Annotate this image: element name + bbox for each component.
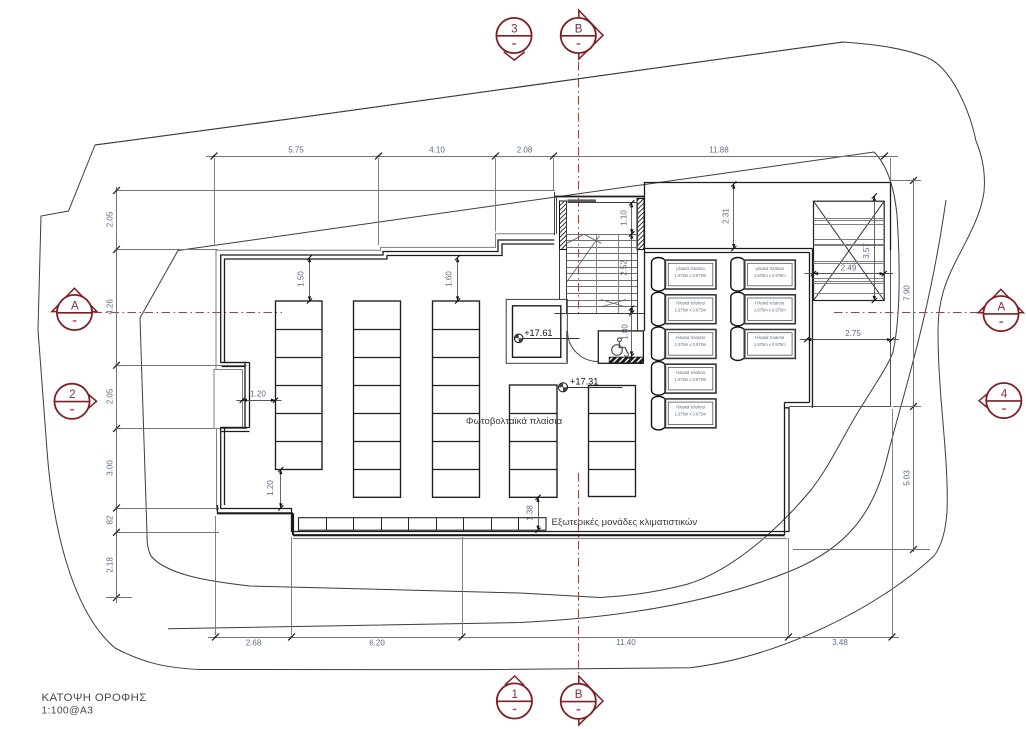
svg-text:Ηλιακά πλαίσια: Ηλιακά πλαίσια [676, 370, 706, 375]
svg-text:2.05: 2.05 [105, 388, 114, 404]
svg-text:Φωτοβολταϊκά πλαίσια: Φωτοβολταϊκά πλαίσια [466, 416, 563, 427]
svg-text:3.00: 3.00 [105, 460, 114, 476]
svg-text:2.52: 2.52 [619, 260, 628, 276]
svg-text:1.975m x 0.975m: 1.975m x 0.975m [754, 342, 786, 347]
svg-text:1.975m x 0.975m: 1.975m x 0.975m [754, 273, 786, 278]
svg-text:4.26: 4.26 [105, 299, 114, 315]
svg-text:1.975m x 0.975m: 1.975m x 0.975m [675, 308, 707, 313]
svg-text:2.18: 2.18 [105, 557, 114, 573]
svg-text:1:100@A3: 1:100@A3 [42, 705, 94, 716]
svg-text:+17.31: +17.31 [570, 376, 598, 386]
svg-text:2.05: 2.05 [105, 211, 114, 227]
svg-text:3.48: 3.48 [832, 638, 848, 647]
svg-text:4: 4 [1001, 388, 1008, 400]
svg-text:1.20: 1.20 [266, 480, 275, 496]
svg-text:Ηλιακά πλαίσια: Ηλιακά πλαίσια [755, 335, 785, 340]
svg-text:2.49: 2.49 [841, 264, 857, 273]
svg-text:2.75: 2.75 [845, 329, 861, 338]
svg-text:μλιακά πλαίσια: μλιακά πλαίσια [676, 266, 705, 271]
svg-text:5.03: 5.03 [902, 470, 911, 486]
svg-text:11.88: 11.88 [709, 146, 729, 155]
svg-text:1.38: 1.38 [526, 505, 535, 521]
svg-text:1.975m x 0.975m: 1.975m x 0.975m [754, 308, 786, 313]
svg-text:Εξωτερικές μονάδες κλιματιστικ: Εξωτερικές μονάδες κλιματιστικών [552, 517, 698, 528]
svg-text:ΚΑΤΟΨΗ ΟΡΟΦΗΣ: ΚΑΤΟΨΗ ΟΡΟΦΗΣ [42, 692, 147, 704]
svg-text:1.975m x 0.975m: 1.975m x 0.975m [675, 377, 707, 382]
svg-text:1: 1 [511, 689, 517, 701]
svg-text:6.20: 6.20 [369, 639, 385, 648]
svg-text:11.40: 11.40 [616, 638, 636, 647]
svg-text:5.75: 5.75 [288, 146, 304, 155]
svg-text:82: 82 [105, 515, 114, 524]
svg-text:1.80: 1.80 [620, 324, 629, 340]
svg-text:A: A [71, 300, 79, 312]
svg-text:3.57: 3.57 [862, 243, 871, 259]
svg-text:1.975m x 0.975m: 1.975m x 0.975m [675, 412, 707, 417]
svg-text:2.68: 2.68 [246, 639, 262, 648]
svg-text:1.60: 1.60 [445, 271, 454, 287]
svg-text:2: 2 [69, 389, 75, 401]
svg-text:μλιακά πλαίσια: μλιακά πλαίσια [756, 266, 785, 271]
svg-text:1.10: 1.10 [619, 210, 628, 226]
svg-text:+17.61: +17.61 [524, 328, 552, 338]
svg-text:4.10: 4.10 [429, 146, 445, 155]
svg-text:3: 3 [511, 23, 517, 35]
svg-text:Ηλιακά πλαίσια: Ηλιακά πλαίσια [676, 335, 706, 340]
svg-text:Ηλιακά πλαίσια: Ηλιακά πλαίσια [676, 301, 706, 306]
svg-text:2.08: 2.08 [517, 146, 533, 155]
svg-text:1.20: 1.20 [250, 390, 266, 399]
svg-text:1.975m x 0.975m: 1.975m x 0.975m [675, 273, 707, 278]
svg-text:Ηλιακά πλαίσια: Ηλιακά πλαίσια [676, 405, 706, 410]
svg-text:1.975m x 0.975m: 1.975m x 0.975m [675, 342, 707, 347]
svg-text:Ηλιακά πλαίσια: Ηλιακά πλαίσια [755, 301, 785, 306]
svg-text:A: A [997, 301, 1005, 313]
svg-text:7.90: 7.90 [902, 285, 911, 301]
svg-text:1.50: 1.50 [297, 271, 306, 287]
svg-text:2.31: 2.31 [721, 208, 730, 224]
svg-text:B: B [575, 23, 583, 35]
svg-text:B: B [575, 689, 583, 701]
